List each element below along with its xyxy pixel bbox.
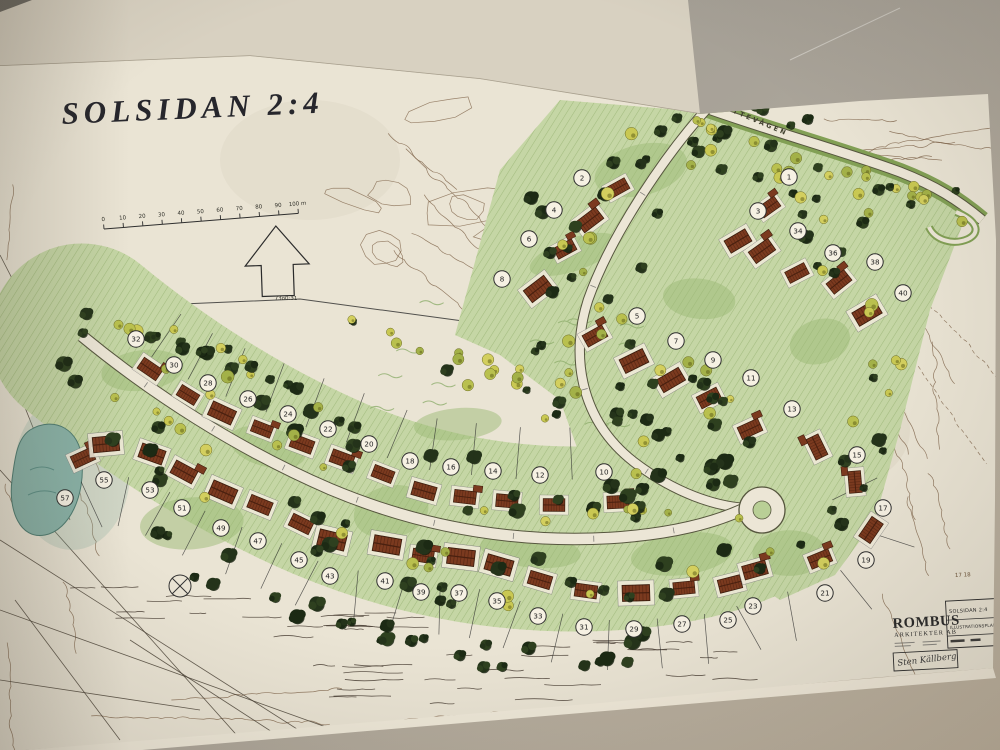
vignette	[0, 0, 1000, 750]
photo-of-site-plan: 3230282624222018161412105755535149474543…	[0, 0, 1000, 750]
site-plan-drawing: 3230282624222018161412105755535149474543…	[0, 0, 1000, 750]
